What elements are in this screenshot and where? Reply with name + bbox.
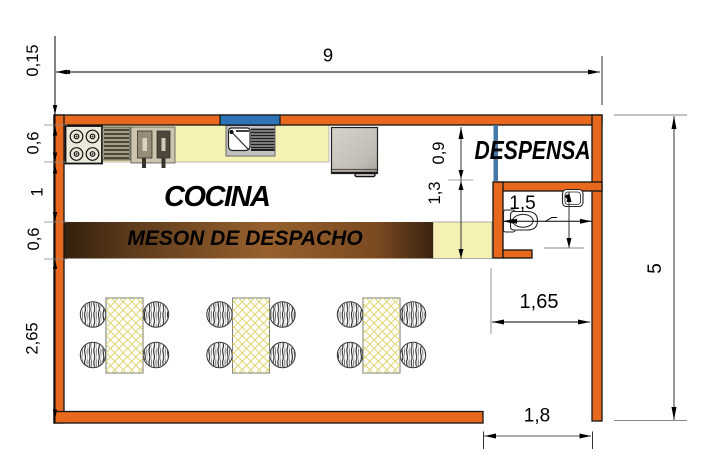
svg-text:1,8: 1,8: [524, 406, 550, 427]
svg-text:DESPENSA: DESPENSA: [475, 135, 591, 165]
svg-text:2,65: 2,65: [24, 322, 42, 354]
svg-text:0,6: 0,6: [25, 228, 43, 251]
svg-text:1,65: 1,65: [520, 291, 559, 313]
svg-text:0,15: 0,15: [24, 44, 42, 76]
svg-text:9: 9: [323, 45, 333, 66]
svg-text:0,9: 0,9: [430, 142, 448, 165]
svg-text:1,3: 1,3: [426, 182, 444, 205]
svg-text:1,5: 1,5: [509, 193, 535, 214]
svg-text:0,6: 0,6: [25, 132, 43, 155]
svg-text:COCINA: COCINA: [164, 181, 271, 213]
svg-text:1: 1: [29, 187, 47, 196]
svg-text:MESON DE DESPACHO: MESON DE DESPACHO: [127, 227, 362, 250]
svg-text:5: 5: [645, 263, 666, 274]
